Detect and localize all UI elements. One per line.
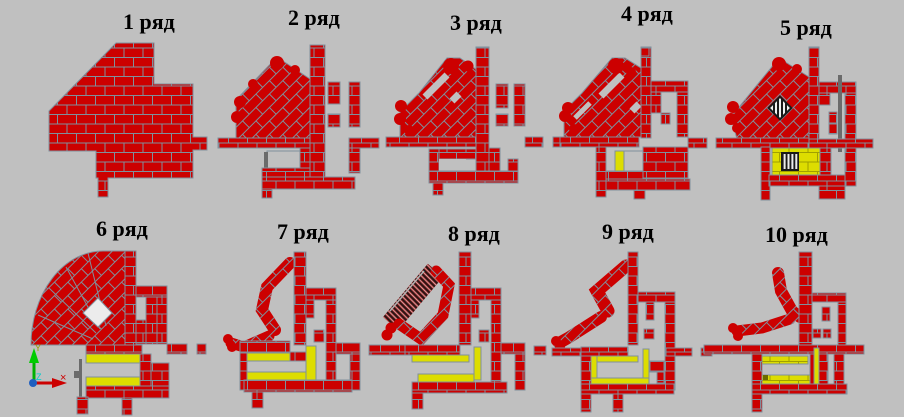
svg-text:3 ряд: 3 ряд [450, 10, 502, 35]
svg-text:Y: Y [35, 343, 41, 353]
svg-text:7 ряд: 7 ряд [277, 219, 329, 244]
svg-text:8 ряд: 8 ряд [448, 221, 500, 246]
svg-text:9 ряд: 9 ряд [602, 219, 654, 244]
svg-text:6 ряд: 6 ряд [96, 216, 148, 241]
svg-text:Z: Z [36, 372, 42, 382]
svg-text:4 ряд: 4 ряд [621, 1, 673, 26]
svg-text:2 ряд: 2 ряд [288, 5, 340, 30]
svg-text:10 ряд: 10 ряд [765, 222, 828, 247]
svg-text:×: × [60, 372, 66, 384]
svg-text:1 ряд: 1 ряд [123, 9, 175, 34]
svg-text:5 ряд: 5 ряд [780, 15, 832, 40]
